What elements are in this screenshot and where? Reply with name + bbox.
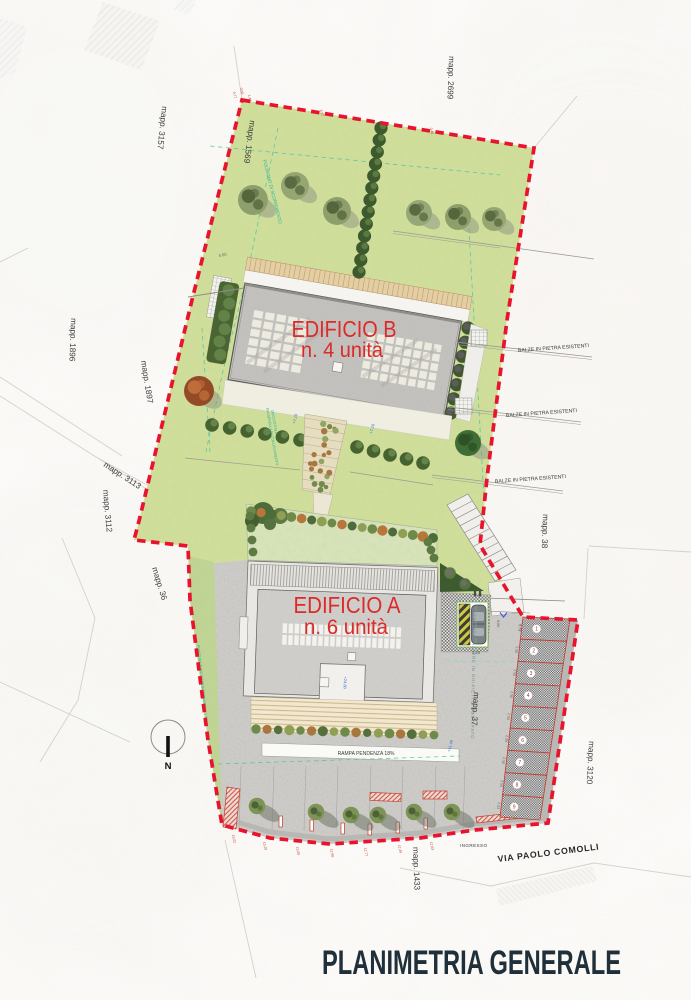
svg-text:2.56: 2.56 (501, 757, 506, 764)
svg-text:mapp. 1896: mapp. 1896 (67, 318, 78, 362)
svg-text:3: 3 (530, 671, 533, 677)
svg-text:7: 7 (518, 760, 521, 766)
svg-text:1: 1 (535, 627, 538, 633)
svg-text:2.56: 2.56 (512, 669, 517, 676)
svg-text:2.73: 2.73 (517, 624, 522, 631)
svg-text:5: 5 (524, 716, 527, 722)
svg-text:EDIFICIO A: EDIFICIO A (294, 592, 402, 618)
svg-text:8: 8 (516, 782, 519, 788)
svg-text:2: 2 (532, 649, 535, 655)
svg-text:2.56: 2.56 (506, 713, 511, 720)
svg-text:mapp. 38: mapp. 38 (540, 514, 550, 549)
svg-text:mapp. 2699: mapp. 2699 (445, 56, 456, 100)
svg-text:RAMPA PENDENZA 18%: RAMPA PENDENZA 18% (338, 751, 395, 757)
svg-text:2.56: 2.56 (504, 735, 509, 742)
svg-text:2.56: 2.56 (514, 646, 519, 653)
svg-text:2.53: 2.53 (496, 802, 501, 809)
svg-text:5.00: 5.00 (496, 620, 500, 627)
svg-text:PLANIMETRIA GENERALE: PLANIMETRIA GENERALE (322, 944, 621, 982)
svg-text:mapp. 1433: mapp. 1433 (411, 847, 422, 891)
svg-text:n. 4 unità: n. 4 unità (301, 339, 383, 362)
svg-text:9: 9 (513, 805, 516, 811)
svg-text:4: 4 (527, 693, 530, 699)
svg-text:2.54: 2.54 (499, 780, 504, 787)
svg-text:+24.80: +24.80 (343, 676, 348, 689)
svg-text:n. 6 unità: n. 6 unità (304, 616, 388, 639)
svg-text:INGRESSO: INGRESSO (460, 843, 487, 848)
svg-text:2.56: 2.56 (509, 691, 514, 698)
svg-text:6: 6 (521, 738, 524, 744)
svg-text:N: N (165, 761, 172, 772)
